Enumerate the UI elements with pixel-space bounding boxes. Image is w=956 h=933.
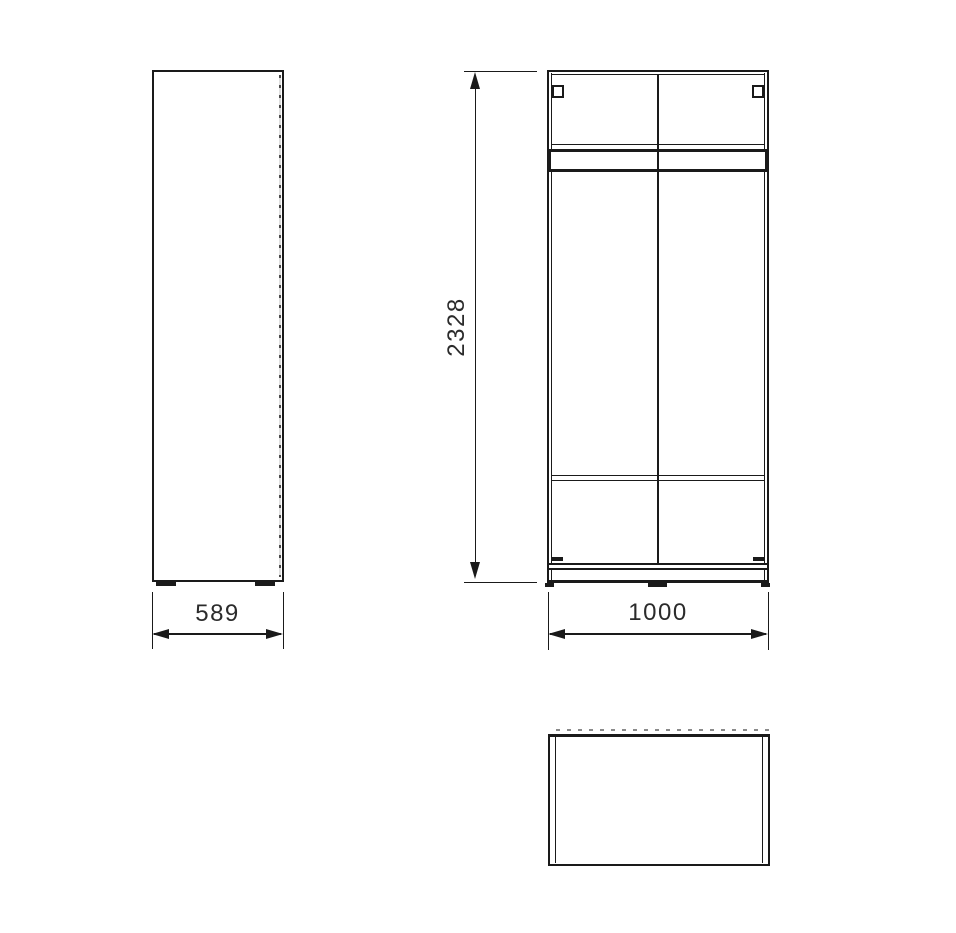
top-view-door-edge-dashed-line bbox=[556, 729, 770, 731]
lower-doors-top-line bbox=[551, 480, 765, 481]
side-view-front-edge-dashed-line bbox=[279, 75, 281, 577]
front-view-foot-right bbox=[761, 583, 770, 587]
top-view-right-panel-line bbox=[762, 737, 763, 863]
side-view-foot-front bbox=[156, 582, 176, 586]
arrow-right-icon bbox=[751, 629, 768, 639]
width-dimension-line bbox=[550, 633, 766, 635]
height-value-label: 2328 bbox=[444, 267, 470, 387]
plinth-band bbox=[549, 563, 767, 570]
arrow-down-icon bbox=[470, 562, 480, 579]
arrow-left-icon bbox=[548, 629, 565, 639]
shelf-band-divider-overlap bbox=[657, 149, 660, 172]
arrow-left-icon bbox=[152, 629, 169, 639]
width-value-label: 1000 bbox=[548, 600, 768, 626]
top-door-right-hinge bbox=[752, 85, 764, 98]
side-view-outline bbox=[152, 70, 284, 582]
top-view-left-panel-line bbox=[555, 737, 556, 863]
height-extension-line-bottom bbox=[464, 582, 537, 584]
height-dimension-line bbox=[475, 76, 477, 576]
lower-door-right-handle bbox=[753, 557, 764, 561]
lower-door-left-handle bbox=[552, 557, 563, 561]
top-view-outline bbox=[548, 734, 770, 866]
side-view-foot-back bbox=[255, 582, 275, 586]
arrow-up-icon bbox=[470, 72, 480, 89]
front-view-foot-center bbox=[648, 583, 667, 587]
mid-shelf-line bbox=[551, 475, 765, 476]
top-doors-bottom-line bbox=[551, 144, 765, 145]
front-view-center-divider bbox=[657, 74, 660, 566]
technical-drawing-canvas: 589 2328 1000 bbox=[0, 0, 956, 933]
front-view-foot-left bbox=[545, 583, 554, 587]
depth-value-label: 589 bbox=[152, 601, 283, 627]
depth-dimension-line bbox=[154, 633, 281, 635]
top-door-left-hinge bbox=[552, 85, 564, 98]
arrow-right-icon bbox=[266, 629, 283, 639]
